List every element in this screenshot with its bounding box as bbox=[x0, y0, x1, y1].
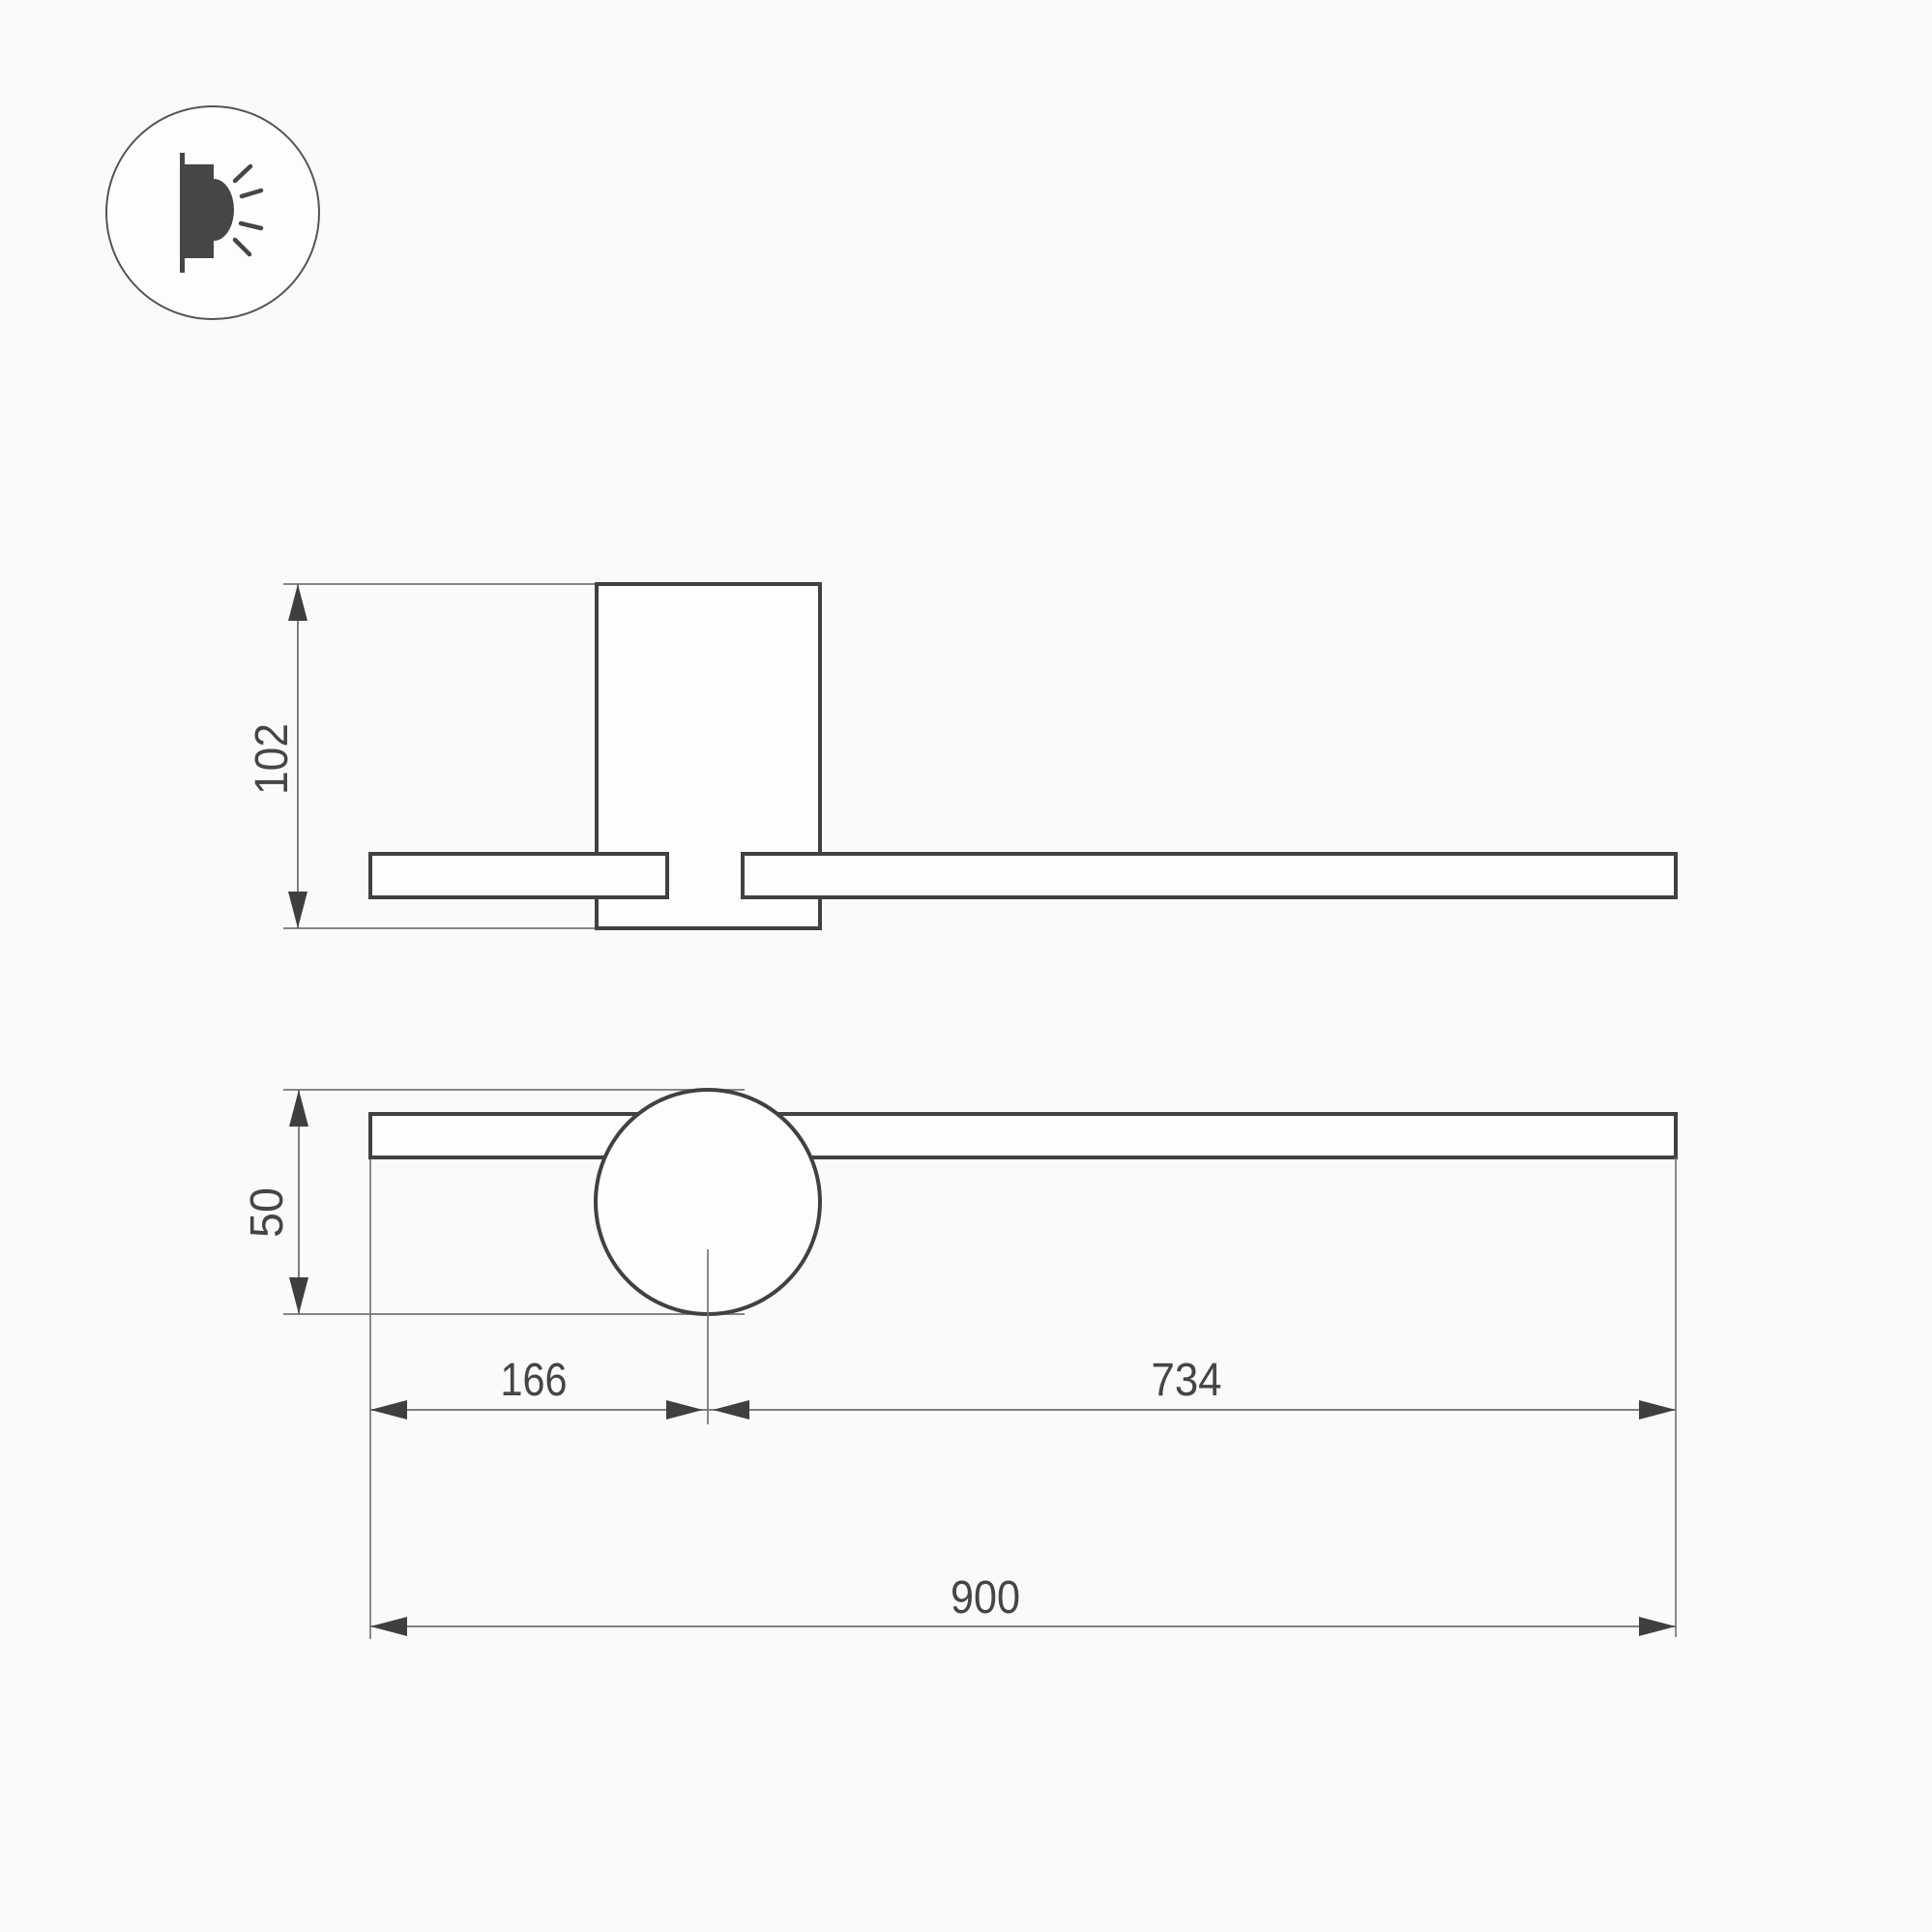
dimension-label-166: 166 bbox=[501, 1355, 568, 1406]
lamp-tube-front bbox=[370, 1114, 1676, 1157]
dimension-166-734: 166 734 bbox=[370, 1355, 1676, 1420]
front-view: 50 166 734 900 bbox=[242, 1090, 1676, 1639]
dimension-arrow-left bbox=[713, 1400, 749, 1420]
lamp-tube-left-side bbox=[370, 854, 667, 897]
dimension-arrow-down bbox=[288, 892, 307, 928]
dimension-label-102: 102 bbox=[247, 723, 298, 795]
dimension-height-50: 50 bbox=[242, 1090, 308, 1314]
icon-wall-line bbox=[180, 153, 185, 273]
dimension-label-734: 734 bbox=[1152, 1355, 1222, 1406]
dimension-arrow-right bbox=[1639, 1617, 1676, 1636]
side-view: 102 bbox=[247, 584, 1676, 928]
dimension-label-900: 900 bbox=[951, 1572, 1020, 1624]
drawing-canvas: 102 50 1 bbox=[0, 0, 1932, 1932]
dimension-arrow-left bbox=[370, 1400, 407, 1420]
dimension-arrow-right bbox=[1639, 1400, 1676, 1420]
dimension-arrow-right bbox=[666, 1400, 703, 1420]
dimension-arrow-up bbox=[288, 584, 307, 621]
dimension-arrow-up bbox=[289, 1090, 308, 1127]
wall-light-icon bbox=[106, 106, 319, 319]
dimension-label-50: 50 bbox=[242, 1187, 293, 1238]
lamp-tube-right-side bbox=[743, 854, 1676, 897]
dimension-arrow-down bbox=[289, 1277, 308, 1314]
technical-drawing-page: 102 50 1 bbox=[0, 0, 1932, 1932]
dimension-900: 900 bbox=[370, 1572, 1676, 1636]
dimension-arrow-left bbox=[370, 1617, 407, 1636]
icon-lamp-body bbox=[185, 164, 214, 258]
